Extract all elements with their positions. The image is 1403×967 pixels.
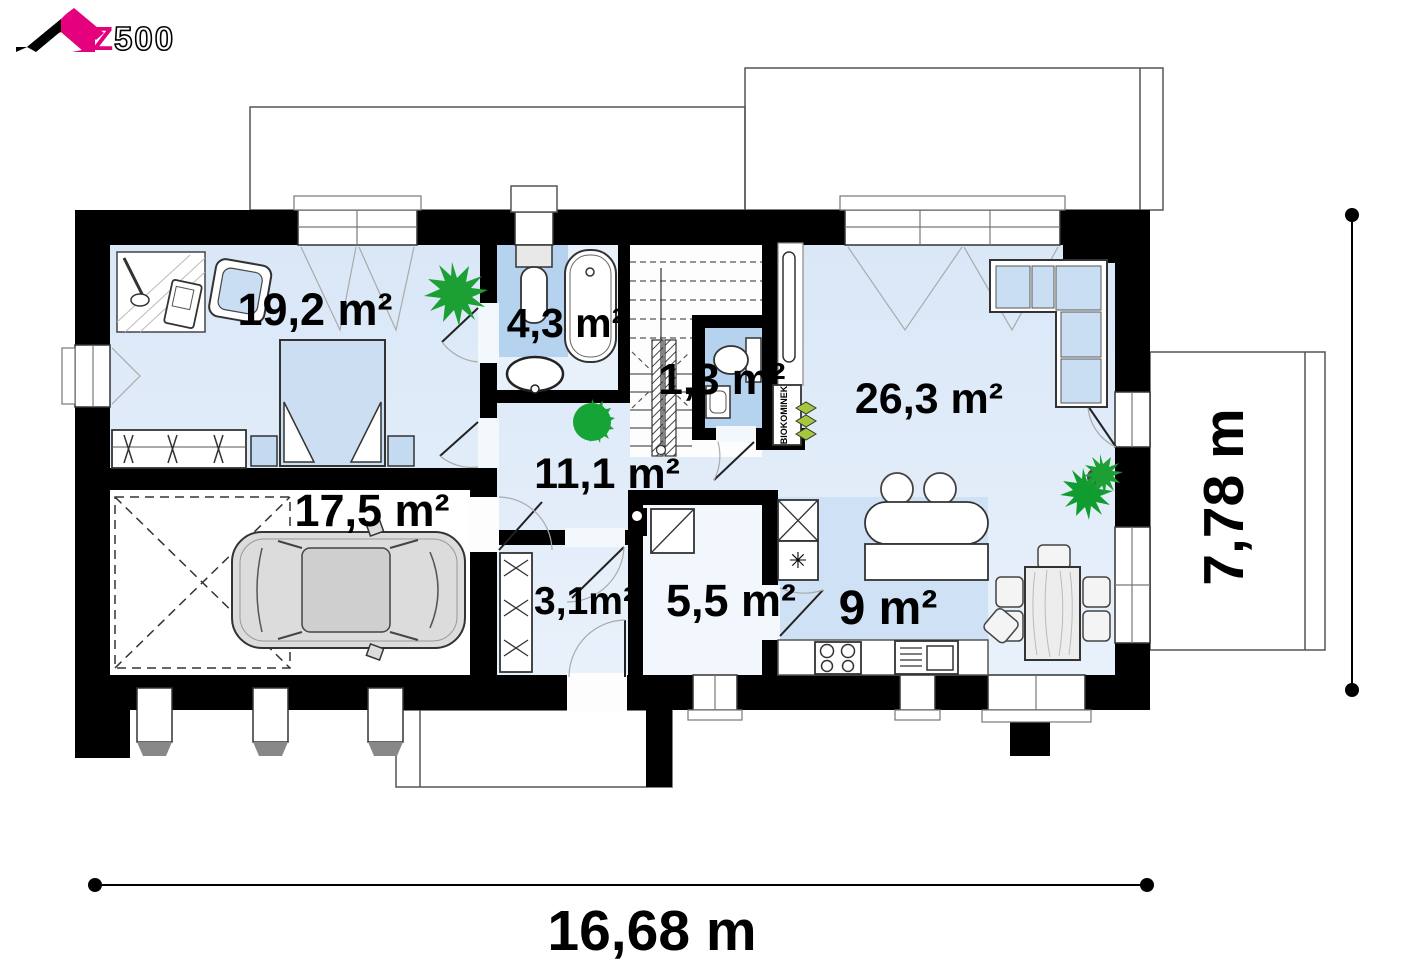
desk [117, 252, 205, 332]
nightstand-right [388, 436, 414, 466]
opening-vestibule-door [565, 528, 625, 547]
porch-slab [396, 710, 672, 787]
stove-icon [815, 642, 861, 674]
dimension-width-label: 16,68 m [547, 899, 756, 963]
bed [280, 340, 385, 466]
window-living-right [1115, 527, 1150, 643]
wall-corner-bottomleft [75, 710, 130, 758]
label-bathroom: 4,3 m² [507, 300, 626, 346]
opening-garage-door [468, 497, 499, 552]
coat-closet [500, 553, 532, 672]
wall-utility-right-a [762, 505, 778, 585]
wardrobe [112, 430, 246, 468]
floor-plan-drawing: Z 500 [0, 0, 1403, 967]
car [232, 520, 465, 660]
svg-text:✳: ✳ [789, 548, 807, 573]
roof-outline-left [250, 107, 745, 210]
car-roof [302, 548, 390, 632]
wall-wc-bottom-a [692, 428, 716, 440]
opening-wc-door [716, 426, 756, 442]
entrance-porch [396, 710, 672, 787]
logo-digits: 500 [114, 20, 175, 57]
dimension-depth-label: 7,78 m [1192, 408, 1256, 585]
z500-logo: Z 500 [16, 7, 175, 57]
window-bathroom-vent [511, 186, 557, 245]
logo-roof-black2 [27, 19, 66, 52]
sliding-door-leaf [783, 252, 795, 362]
sink-tap [531, 385, 539, 393]
nightstand-left [251, 436, 277, 466]
vestibule-contents [500, 553, 532, 672]
kitchen-contents: ✳ [778, 473, 988, 675]
label-utility: 5,5 m² [666, 575, 796, 626]
roof-outline [250, 68, 1163, 210]
floor-plan-page: Z 500 [0, 0, 1403, 967]
fridge-icon [778, 500, 818, 541]
label-bedroom: 19,2 m² [237, 284, 392, 335]
label-wc: 1,3 m² [658, 355, 785, 404]
fireplace-chevrons-icon [796, 402, 816, 440]
dining-chair [1083, 611, 1110, 641]
label-living: 26,3 m² [855, 375, 1003, 423]
window-kitchen-bottom [895, 675, 940, 720]
opening-bathroom-door [478, 303, 499, 363]
wall-bathroom-bottom [497, 390, 630, 403]
wall-utility-right-b [762, 640, 778, 675]
kitchen-sink-icon [895, 641, 958, 674]
window-utility-bottom [688, 675, 742, 720]
toilet-cistern [516, 245, 552, 267]
label-vestibule: 3,1m² [534, 580, 636, 623]
window-dining-bottom [982, 675, 1091, 722]
roof-outline-right [745, 68, 1163, 210]
dining-chair [996, 577, 1023, 607]
wall-left [75, 210, 110, 710]
dimension-bottom: 16,68 m [88, 878, 1154, 963]
dining-chair [1083, 577, 1110, 607]
opening-bedroom-door [478, 418, 499, 468]
logo-z: Z [93, 20, 113, 57]
porch-pillar [646, 710, 672, 787]
label-hall: 11,1 m² [534, 450, 680, 498]
bar-stool2 [924, 473, 956, 505]
kitchen-counter [778, 640, 988, 675]
label-garage: 17,5 m² [294, 485, 449, 536]
opening-entrance-door [567, 673, 627, 712]
bar-stool [881, 473, 913, 505]
label-kitchen: 9 m² [839, 582, 938, 635]
dining-chair-top [1038, 545, 1070, 569]
